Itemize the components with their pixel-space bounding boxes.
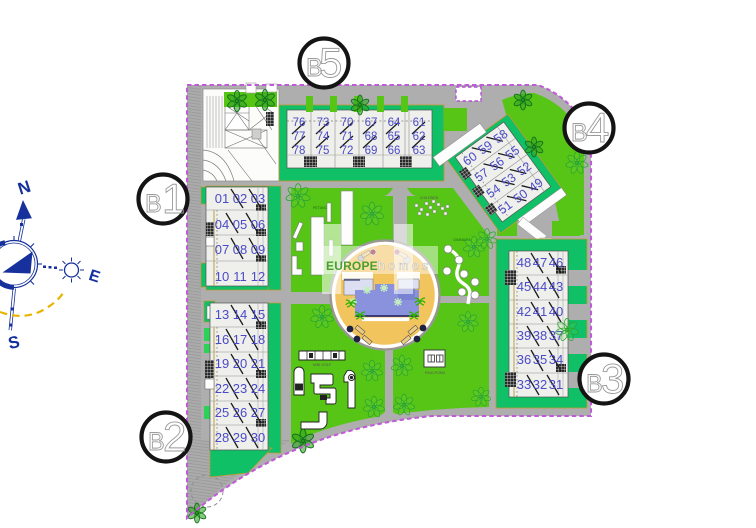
- svg-text:44: 44: [533, 279, 547, 294]
- svg-text:10: 10: [215, 269, 229, 284]
- svg-text:69: 69: [365, 145, 378, 157]
- svg-text:72: 72: [341, 145, 354, 157]
- svg-text:EUROPE: EUROPE: [326, 259, 378, 273]
- svg-text:73: 73: [317, 117, 330, 129]
- svg-text:36: 36: [517, 352, 531, 367]
- svg-text:19: 19: [215, 356, 229, 371]
- svg-text:23: 23: [233, 381, 247, 396]
- svg-text:24: 24: [251, 381, 265, 396]
- svg-text:75: 75: [317, 145, 330, 157]
- svg-text:PING-PONG: PING-PONG: [425, 371, 446, 375]
- svg-text:38: 38: [533, 328, 547, 343]
- svg-text:13: 13: [215, 307, 229, 322]
- svg-text:21: 21: [251, 356, 265, 371]
- svg-text:22: 22: [215, 381, 229, 396]
- svg-text:15: 15: [251, 307, 265, 322]
- svg-text:17: 17: [233, 332, 247, 347]
- svg-text:70: 70: [341, 117, 354, 129]
- svg-text:14: 14: [233, 307, 247, 322]
- svg-text:76: 76: [293, 117, 306, 129]
- svg-text:29: 29: [233, 430, 247, 445]
- svg-text:64: 64: [388, 117, 401, 129]
- svg-text:35: 35: [533, 352, 547, 367]
- svg-text:47: 47: [533, 255, 547, 270]
- svg-text:06: 06: [251, 217, 265, 232]
- svg-text:39: 39: [517, 328, 531, 343]
- svg-text:71: 71: [341, 131, 354, 143]
- svg-text:41: 41: [533, 304, 547, 319]
- svg-text:4: 4: [586, 104, 609, 151]
- svg-text:62: 62: [413, 131, 426, 143]
- svg-text:07: 07: [215, 242, 229, 257]
- svg-text:05: 05: [233, 217, 247, 232]
- svg-text:48: 48: [517, 255, 531, 270]
- svg-text:MINI GOLF: MINI GOLF: [313, 363, 332, 367]
- svg-text:18: 18: [251, 332, 265, 347]
- svg-text:1: 1: [162, 175, 185, 222]
- svg-text:CHILDREN: CHILDREN: [420, 196, 439, 200]
- svg-text:65: 65: [388, 131, 401, 143]
- svg-text:45: 45: [517, 279, 531, 294]
- svg-text:5: 5: [319, 39, 342, 86]
- svg-text:09: 09: [251, 242, 265, 257]
- svg-text:61: 61: [413, 117, 426, 129]
- svg-text:66: 66: [388, 145, 401, 157]
- svg-text:3: 3: [601, 355, 624, 402]
- svg-text:27: 27: [251, 405, 265, 420]
- svg-text:34: 34: [549, 352, 563, 367]
- svg-text:16: 16: [215, 332, 229, 347]
- svg-text:12: 12: [251, 269, 265, 284]
- svg-text:03: 03: [251, 191, 265, 206]
- svg-text:2: 2: [163, 413, 186, 460]
- svg-text:04: 04: [215, 217, 229, 232]
- svg-text:46: 46: [549, 255, 563, 270]
- svg-text:77: 77: [293, 131, 306, 143]
- svg-text:26: 26: [233, 405, 247, 420]
- svg-text:28: 28: [215, 430, 229, 445]
- svg-text:63: 63: [413, 145, 426, 157]
- svg-text:08: 08: [233, 242, 247, 257]
- svg-text:68: 68: [365, 131, 378, 143]
- svg-text:11: 11: [233, 269, 247, 284]
- svg-text:01: 01: [215, 191, 229, 206]
- svg-text:30: 30: [251, 430, 265, 445]
- svg-text:02: 02: [233, 191, 247, 206]
- svg-text:32: 32: [533, 377, 547, 392]
- svg-text:25: 25: [215, 405, 229, 420]
- svg-text:78: 78: [293, 145, 306, 157]
- svg-text:67: 67: [365, 117, 378, 129]
- svg-text:74: 74: [317, 131, 330, 143]
- svg-text:42: 42: [517, 304, 531, 319]
- svg-text:40: 40: [549, 304, 563, 319]
- svg-text:31: 31: [549, 377, 563, 392]
- svg-text:43: 43: [549, 279, 563, 294]
- svg-text:B: B: [145, 190, 162, 218]
- svg-text:homes: homes: [378, 259, 432, 273]
- svg-text:33: 33: [517, 377, 531, 392]
- svg-text:20: 20: [233, 356, 247, 371]
